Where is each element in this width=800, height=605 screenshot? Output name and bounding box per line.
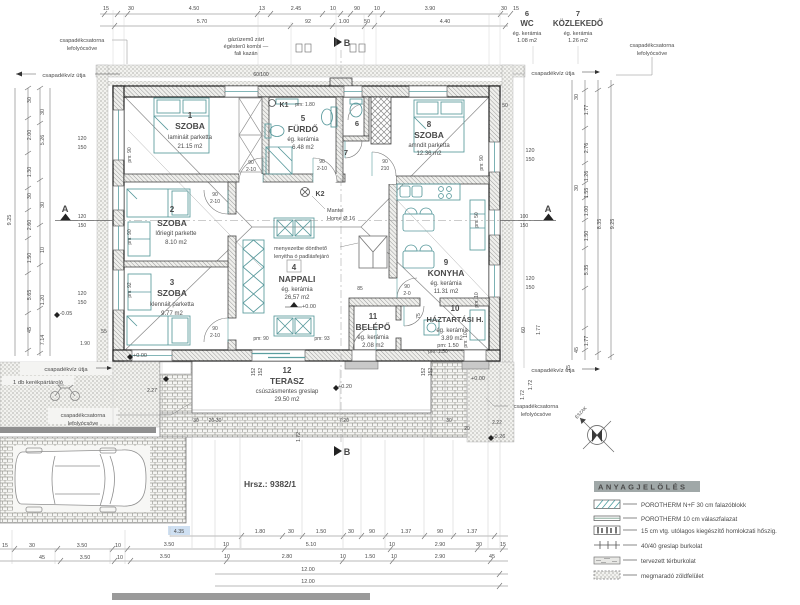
svg-text:pm: 90: pm: 90 <box>127 147 133 163</box>
svg-text:30: 30 <box>40 202 46 208</box>
svg-text:150: 150 <box>526 285 535 291</box>
svg-text:120: 120 <box>78 214 87 220</box>
svg-text:Home Ø 16: Home Ø 16 <box>327 216 355 222</box>
svg-text:152: 152 <box>428 368 434 377</box>
svg-text:3.50: 3.50 <box>77 543 88 549</box>
svg-text:tervezett térburkolat: tervezett térburkolat <box>641 558 696 565</box>
svg-text:55: 55 <box>101 329 107 335</box>
svg-text:2: 2 <box>170 205 175 214</box>
svg-text:1: 1 <box>188 111 193 120</box>
svg-text:21.15 m2: 21.15 m2 <box>177 144 203 150</box>
svg-text:45: 45 <box>489 554 495 560</box>
svg-text:+0.00: +0.00 <box>302 304 316 310</box>
svg-text:csapadékvíz útja: csapadékvíz útja <box>44 367 88 373</box>
svg-text:1.80: 1.80 <box>255 529 266 535</box>
svg-text:POROTHERM 10 cm válaszfalazat: POROTHERM 10 cm válaszfalazat <box>641 516 738 523</box>
svg-text:SZOBA: SZOBA <box>414 130 444 140</box>
svg-text:1.77: 1.77 <box>584 105 590 116</box>
svg-text:12: 12 <box>283 366 292 375</box>
svg-text:15: 15 <box>103 6 109 12</box>
svg-text:4: 4 <box>292 263 297 272</box>
svg-text:1.00: 1.00 <box>339 19 350 25</box>
svg-text:6.48 m2: 6.48 m2 <box>292 145 314 151</box>
svg-text:2.27: 2.27 <box>147 388 157 394</box>
svg-text:2.22: 2.22 <box>492 420 502 426</box>
svg-text:csapadékcsatorna: csapadékcsatorna <box>61 413 107 419</box>
svg-text:pm: 93: pm: 93 <box>314 336 330 342</box>
svg-text:lefolyócsöve: lefolyócsöve <box>67 46 97 52</box>
svg-text:1.50: 1.50 <box>584 231 590 242</box>
svg-text:1.26 m2: 1.26 m2 <box>568 38 588 44</box>
svg-text:85: 85 <box>357 286 363 292</box>
svg-text:30: 30 <box>29 543 35 549</box>
svg-text:40/40 greslap burkolat: 40/40 greslap burkolat <box>641 543 703 550</box>
svg-text:KONYHA: KONYHA <box>428 268 465 278</box>
svg-text:1 db kerékpártároló: 1 db kerékpártároló <box>13 380 63 386</box>
svg-text:1.37: 1.37 <box>467 529 478 535</box>
svg-text:csúszásmentes greslap: csúszásmentes greslap <box>256 389 319 395</box>
svg-text:120: 120 <box>78 136 87 142</box>
svg-text:10: 10 <box>451 304 460 313</box>
svg-text:5.10: 5.10 <box>306 542 317 548</box>
svg-text:9.25: 9.25 <box>610 219 616 230</box>
svg-text:152: 152 <box>421 368 427 377</box>
svg-text:50: 50 <box>502 103 508 109</box>
svg-text:ég. kerámia: ég. kerámia <box>357 335 389 341</box>
svg-text:120: 120 <box>78 291 87 297</box>
svg-text:90: 90 <box>404 284 410 290</box>
svg-text:92: 92 <box>305 19 311 25</box>
svg-text:SZOBA: SZOBA <box>157 218 187 228</box>
svg-text:10: 10 <box>223 542 229 548</box>
svg-text:1.72: 1.72 <box>296 432 302 442</box>
svg-text:10: 10 <box>115 543 121 549</box>
svg-text:POROTHERM N+F 30 cm falazóblo: POROTHERM N+F 30 cm falazóblokk <box>641 502 747 509</box>
svg-text:30: 30 <box>476 542 482 548</box>
svg-text:4.50: 4.50 <box>189 6 200 12</box>
svg-text:2.45: 2.45 <box>291 6 302 12</box>
svg-text:13: 13 <box>259 6 265 12</box>
svg-text:csapadékcsatorna: csapadékcsatorna <box>514 404 560 410</box>
svg-text:7.20: 7.20 <box>339 418 349 424</box>
svg-text:pm: 92: pm: 92 <box>127 282 133 298</box>
svg-text:30: 30 <box>574 94 580 100</box>
svg-text:15: 15 <box>500 542 506 548</box>
svg-text:pm: 90: pm: 90 <box>253 336 269 342</box>
svg-text:3.50: 3.50 <box>160 554 171 560</box>
svg-text:50: 50 <box>364 19 370 25</box>
svg-text:2.80: 2.80 <box>282 554 293 560</box>
svg-text:lefolyócsöve: lefolyócsöve <box>68 421 98 427</box>
svg-text:90: 90 <box>212 192 218 198</box>
svg-text:2-10: 2-10 <box>246 167 256 173</box>
svg-text:4.35: 4.35 <box>174 529 185 535</box>
svg-text:A: A <box>62 204 69 215</box>
svg-text:+0.00: +0.00 <box>133 353 147 359</box>
svg-text:ég. kerámia: ég. kerámia <box>287 137 319 143</box>
svg-text:ég. kerámia: ég. kerámia <box>513 31 543 37</box>
svg-text:20-30: 20-30 <box>209 418 222 424</box>
svg-text:7: 7 <box>576 9 580 18</box>
svg-text:3.50: 3.50 <box>164 542 175 548</box>
svg-text:HÁZTARTÁSI H.: HÁZTARTÁSI H. <box>427 315 484 324</box>
svg-text:26,57 m2: 26,57 m2 <box>284 295 310 301</box>
svg-text:100: 100 <box>520 214 529 220</box>
svg-text:SZOBA: SZOBA <box>157 288 187 298</box>
svg-text:csapadékcsatorna: csapadékcsatorna <box>630 43 676 49</box>
svg-text:1.50: 1.50 <box>365 554 376 560</box>
svg-text:fali kazán: fali kazán <box>234 51 257 57</box>
svg-text:12.36 m2: 12.36 m2 <box>416 151 442 157</box>
svg-text:BELÉPŐ: BELÉPŐ <box>356 321 391 332</box>
svg-text:210: 210 <box>381 166 390 172</box>
svg-text:15: 15 <box>513 6 519 12</box>
svg-text:90: 90 <box>319 159 325 165</box>
svg-text:-0.26: -0.26 <box>493 434 506 440</box>
svg-text:7.14: 7.14 <box>40 335 46 346</box>
svg-text:6: 6 <box>525 9 529 18</box>
svg-text:csapadékcsatorna: csapadékcsatorna <box>60 38 106 44</box>
svg-text:pm: 90: pm: 90 <box>479 155 485 171</box>
svg-text:10: 10 <box>340 554 346 560</box>
svg-text:45: 45 <box>574 347 580 353</box>
svg-text:30: 30 <box>501 6 507 12</box>
svg-text:1.55: 1.55 <box>584 188 590 199</box>
svg-text:120: 120 <box>526 148 535 154</box>
svg-text:pm: 1.80: pm: 1.80 <box>295 102 315 108</box>
svg-text:90: 90 <box>369 529 375 535</box>
svg-text:2.90: 2.90 <box>435 542 446 548</box>
svg-text:30: 30 <box>446 418 452 424</box>
svg-text:150: 150 <box>526 157 535 163</box>
svg-text:29.50 m2: 29.50 m2 <box>274 397 300 403</box>
svg-text:-0.05: -0.05 <box>60 311 73 317</box>
svg-text:10: 10 <box>224 554 230 560</box>
svg-text:9.25: 9.25 <box>7 215 13 226</box>
svg-text:pm: 1.50: pm: 1.50 <box>428 349 448 355</box>
svg-text:klennáit parketta: klennáit parketta <box>150 302 195 308</box>
svg-text:10: 10 <box>330 6 336 12</box>
svg-text:lefolyócsöve: lefolyócsöve <box>521 412 551 418</box>
svg-text:NAPPALI: NAPPALI <box>279 274 316 284</box>
svg-text:1.50: 1.50 <box>316 529 327 535</box>
svg-text:2.08 m2: 2.08 m2 <box>362 343 384 349</box>
svg-text:5.70: 5.70 <box>197 19 208 25</box>
svg-text:1.20: 1.20 <box>40 295 46 306</box>
svg-text:pm: 10: pm: 10 <box>474 292 480 308</box>
svg-text:30: 30 <box>348 529 354 535</box>
svg-text:2.76: 2.76 <box>584 143 590 154</box>
svg-text:10: 10 <box>374 6 380 12</box>
svg-text:5: 5 <box>301 114 306 123</box>
svg-text:csapadékvíz útja: csapadékvíz útja <box>42 73 86 79</box>
svg-text:2-0: 2-0 <box>403 291 410 297</box>
svg-text:4.40: 4.40 <box>440 19 451 25</box>
svg-text:3.90: 3.90 <box>425 6 436 12</box>
svg-text:9.77 m2: 9.77 m2 <box>161 311 183 317</box>
svg-text:90: 90 <box>437 529 443 535</box>
svg-text:lamináit parketta: lamináit parketta <box>168 135 213 141</box>
svg-text:pm: 90: pm: 90 <box>127 229 133 245</box>
svg-text:amndit parketta: amndit parketta <box>408 143 450 149</box>
svg-text:90: 90 <box>248 160 254 166</box>
svg-text:2-10: 2-10 <box>210 333 220 339</box>
svg-text:1.26: 1.26 <box>584 171 590 182</box>
svg-text:Hrsz.: 9382/1: Hrsz.: 9382/1 <box>244 479 296 489</box>
svg-text:K2: K2 <box>316 191 325 198</box>
svg-text:ég. kerámia: ég. kerámia <box>430 281 462 287</box>
svg-text:ANYAGJELÖLÉS: ANYAGJELÖLÉS <box>598 483 687 492</box>
svg-text:15 cm vtg. utólagos kiegészítő: 15 cm vtg. utólagos kiegészítő homlokzat… <box>641 528 777 535</box>
svg-text:30: 30 <box>40 109 46 115</box>
svg-text:11.31 m2: 11.31 m2 <box>434 289 459 295</box>
svg-text:csapadékvíz útja: csapadékvíz útja <box>531 71 575 77</box>
svg-text:12.00: 12.00 <box>301 579 315 585</box>
svg-text:11: 11 <box>369 312 378 321</box>
svg-text:1.00: 1.00 <box>584 206 590 217</box>
svg-text:120: 120 <box>526 276 535 282</box>
svg-text:2-10: 2-10 <box>210 199 220 205</box>
svg-text:SZOBA: SZOBA <box>175 121 205 131</box>
svg-text:8.35: 8.35 <box>597 219 603 230</box>
svg-text:pm: 10: pm: 10 <box>463 332 469 348</box>
svg-text:150: 150 <box>78 300 87 306</box>
svg-text:30: 30 <box>574 185 580 191</box>
svg-text:6: 6 <box>355 119 359 128</box>
svg-text:5.26: 5.26 <box>40 135 46 146</box>
svg-text:3.50: 3.50 <box>80 555 91 561</box>
svg-text:8: 8 <box>427 120 432 129</box>
svg-text:B: B <box>344 447 351 457</box>
svg-text:150: 150 <box>520 223 529 229</box>
svg-text:ég. kerámia: ég. kerámia <box>281 287 313 293</box>
svg-text:3.89 m2: 3.89 m2 <box>441 336 463 342</box>
svg-text:3: 3 <box>170 278 175 287</box>
svg-text:90: 90 <box>212 326 218 332</box>
svg-text:10: 10 <box>389 542 395 548</box>
svg-text:7: 7 <box>344 148 348 157</box>
svg-text:KÖZLEKEDŐ: KÖZLEKEDŐ <box>553 19 603 28</box>
svg-text:1.77: 1.77 <box>584 336 590 347</box>
svg-text:1.90: 1.90 <box>80 341 90 347</box>
svg-text:60/100: 60/100 <box>253 72 269 78</box>
svg-text:lőriegit parkette: lőriegit parkette <box>155 231 197 237</box>
svg-text:égésterű kombi —: égésterű kombi — <box>224 44 269 50</box>
svg-text:K1: K1 <box>280 102 289 109</box>
svg-text:1.37: 1.37 <box>401 529 412 535</box>
svg-text:15: 15 <box>2 543 8 549</box>
svg-text:8.10 m2: 8.10 m2 <box>165 240 187 246</box>
svg-text:+0.00: +0.00 <box>471 376 485 382</box>
svg-text:90: 90 <box>382 159 388 165</box>
svg-text:9: 9 <box>444 258 449 267</box>
svg-text:pm: 50: pm: 50 <box>474 212 480 228</box>
svg-text:5.35: 5.35 <box>584 265 590 276</box>
svg-text:ég. kerámia: ég. kerámia <box>564 31 594 37</box>
svg-text:2-10: 2-10 <box>317 166 327 172</box>
svg-text:1.08 m2: 1.08 m2 <box>517 38 537 44</box>
svg-text:90: 90 <box>354 6 360 12</box>
svg-text:A: A <box>545 204 552 215</box>
svg-text:TERASZ: TERASZ <box>270 376 304 386</box>
svg-text:10: 10 <box>117 555 123 561</box>
svg-text:menyezetbe dönthető: menyezetbe dönthető <box>274 246 327 252</box>
svg-text:Mantel: Mantel <box>327 208 344 214</box>
svg-text:10: 10 <box>40 247 46 253</box>
svg-text:152: 152 <box>251 368 257 377</box>
svg-text:lenyitha ó padlásfejáró: lenyitha ó padlásfejáró <box>274 254 329 260</box>
svg-text:1.72: 1.72 <box>520 390 526 400</box>
svg-text:75: 75 <box>566 365 572 371</box>
svg-text:10: 10 <box>391 554 397 560</box>
svg-text:FÜRDŐ: FÜRDŐ <box>288 123 319 134</box>
svg-text:2.90: 2.90 <box>435 554 446 560</box>
svg-text:30: 30 <box>193 418 199 424</box>
svg-text:gázüzemű zárt: gázüzemű zárt <box>228 37 265 43</box>
svg-text:152: 152 <box>258 368 264 377</box>
svg-text:45: 45 <box>39 555 45 561</box>
svg-text:1.72: 1.72 <box>528 380 534 391</box>
svg-text:1.77: 1.77 <box>536 325 542 335</box>
svg-text:lefolyócsöve: lefolyócsöve <box>637 51 667 57</box>
svg-text:150: 150 <box>78 223 87 229</box>
svg-text:WC: WC <box>520 19 534 28</box>
svg-text:150: 150 <box>78 145 87 151</box>
svg-text:12.00: 12.00 <box>301 567 315 573</box>
svg-text:60: 60 <box>521 327 527 333</box>
svg-text:megmaradó zöldfelület: megmaradó zöldfelület <box>641 573 704 580</box>
svg-text:30: 30 <box>288 529 294 535</box>
svg-text:30: 30 <box>128 6 134 12</box>
svg-text:75: 75 <box>416 313 422 319</box>
